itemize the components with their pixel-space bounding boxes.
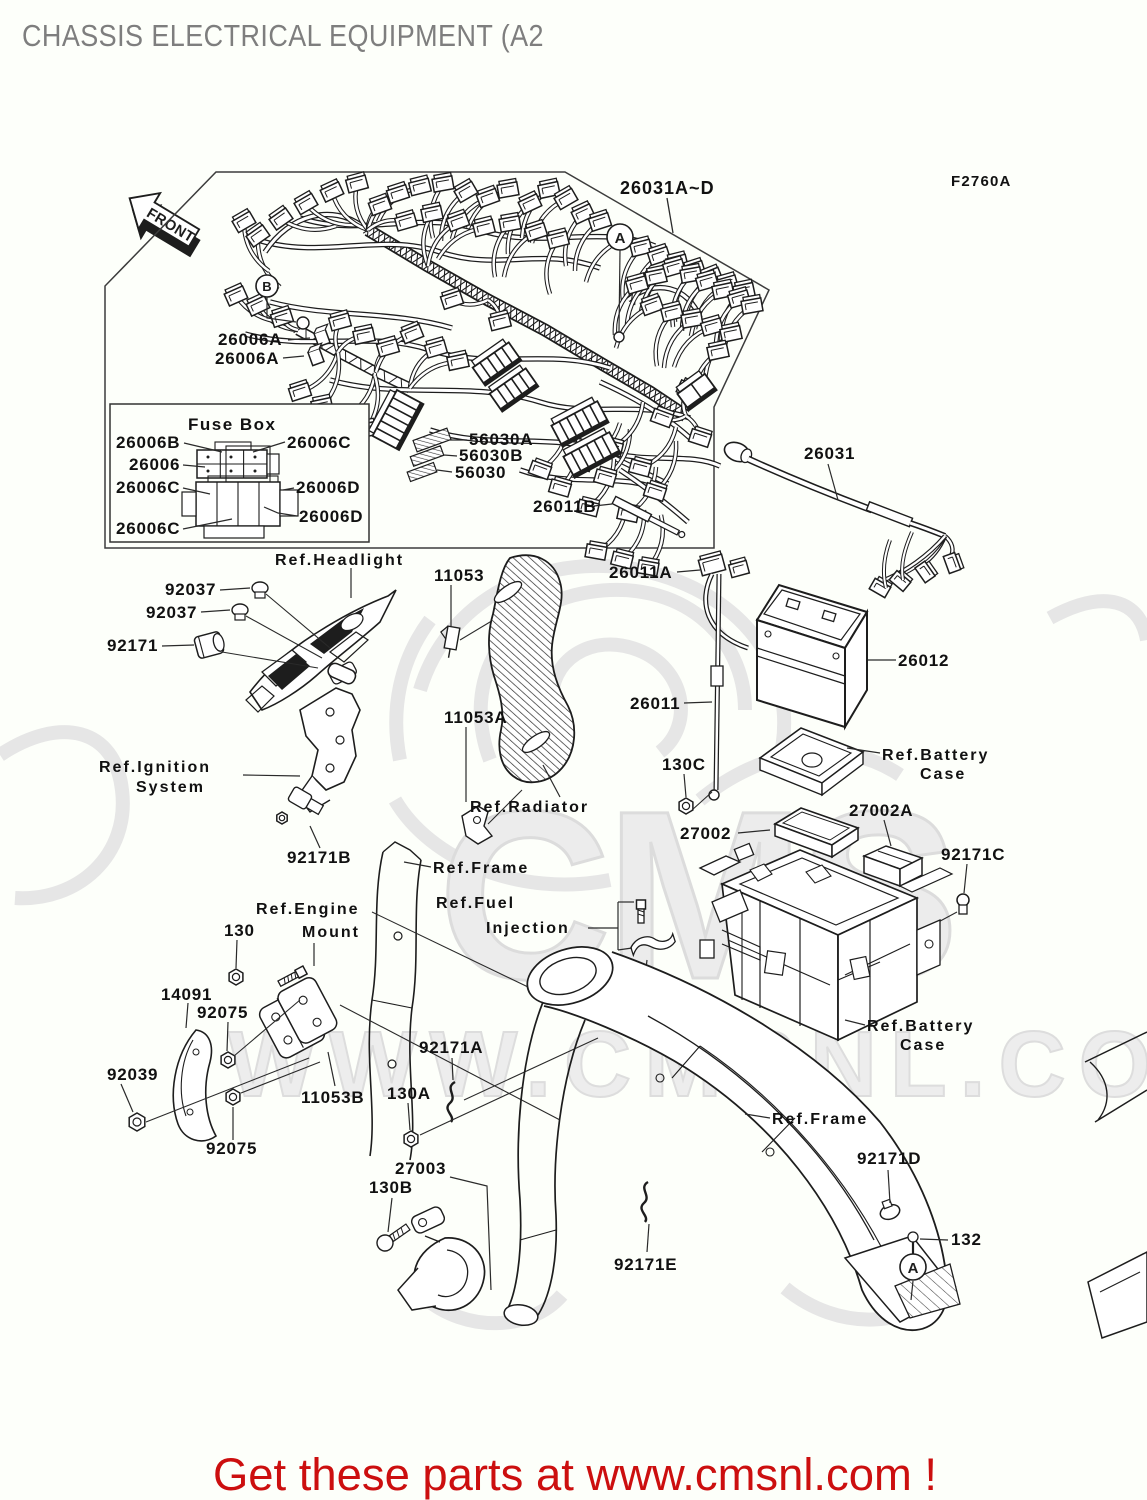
svg-text:26012: 26012: [898, 651, 949, 670]
svg-text:92171E: 92171E: [614, 1255, 677, 1274]
svg-text:A: A: [615, 230, 626, 247]
svg-text:Ref.Frame: Ref.Frame: [772, 1111, 868, 1128]
svg-text:11053B: 11053B: [301, 1088, 364, 1107]
svg-text:56030: 56030: [455, 463, 506, 482]
svg-text:Ref.Battery: Ref.Battery: [882, 747, 989, 764]
svg-text:26031: 26031: [804, 444, 855, 463]
svg-text:26006A: 26006A: [215, 349, 279, 368]
svg-text:92037: 92037: [165, 580, 216, 599]
svg-text:26011B: 26011B: [533, 497, 596, 516]
svg-text:Get these parts at www.cmsnl.c: Get these parts at www.cmsnl.com !: [213, 1449, 937, 1500]
svg-text:92171D: 92171D: [857, 1149, 921, 1168]
svg-text:Ref.Headlight: Ref.Headlight: [275, 552, 404, 569]
svg-text:Ref.Fuel: Ref.Fuel: [436, 895, 515, 912]
svg-text:92171C: 92171C: [941, 845, 1005, 864]
svg-text:132: 132: [951, 1230, 982, 1249]
svg-text:Ref.Engine: Ref.Engine: [256, 901, 360, 918]
svg-text:26006D: 26006D: [296, 478, 360, 497]
svg-text:26011: 26011: [630, 694, 680, 713]
svg-text:130A: 130A: [387, 1084, 431, 1103]
svg-text:92075: 92075: [206, 1139, 257, 1158]
svg-text:11053A: 11053A: [444, 708, 507, 727]
svg-text:F2760A: F2760A: [951, 173, 1012, 190]
svg-text:26006C: 26006C: [116, 519, 180, 538]
svg-text:26006C: 26006C: [287, 433, 351, 452]
svg-text:14091: 14091: [161, 985, 212, 1004]
svg-text:27003: 27003: [395, 1159, 446, 1178]
svg-text:B: B: [262, 279, 271, 294]
svg-text:26006D: 26006D: [299, 507, 363, 526]
svg-text:27002: 27002: [680, 824, 731, 843]
svg-text:A: A: [908, 1260, 919, 1277]
svg-text:130C: 130C: [662, 755, 706, 774]
svg-text:System: System: [136, 779, 205, 796]
svg-text:26011A: 26011A: [609, 563, 672, 582]
svg-text:Fuse Box: Fuse Box: [188, 415, 277, 434]
svg-text:11053: 11053: [434, 566, 484, 585]
svg-text:92075: 92075: [197, 1003, 248, 1022]
svg-text:130: 130: [224, 921, 255, 940]
svg-text:92171A: 92171A: [419, 1038, 483, 1057]
svg-text:130B: 130B: [369, 1178, 413, 1197]
svg-text:Case: Case: [900, 1037, 946, 1054]
svg-text:26006A: 26006A: [218, 330, 282, 349]
svg-text:27002A: 27002A: [849, 801, 913, 820]
svg-text:92171B: 92171B: [287, 848, 351, 867]
svg-text:Mount: Mount: [302, 924, 360, 941]
svg-text:26031A~D: 26031A~D: [620, 178, 715, 198]
svg-text:Ref.Battery: Ref.Battery: [867, 1018, 974, 1035]
svg-text:Ref.Frame: Ref.Frame: [433, 860, 529, 877]
svg-text:92037: 92037: [146, 603, 197, 622]
svg-text:Ref.Ignition: Ref.Ignition: [99, 759, 211, 776]
svg-text:Injection: Injection: [486, 920, 570, 937]
svg-text:CHASSIS ELECTRICAL EQUIPMENT (: CHASSIS ELECTRICAL EQUIPMENT (A2: [22, 18, 544, 53]
svg-text:Ref.Radiator: Ref.Radiator: [470, 799, 589, 816]
svg-text:92171: 92171: [107, 636, 158, 655]
svg-text:26006: 26006: [129, 455, 180, 474]
svg-text:92039: 92039: [107, 1065, 158, 1084]
svg-text:Case: Case: [920, 766, 966, 783]
svg-text:26006C: 26006C: [116, 478, 180, 497]
svg-text:26006B: 26006B: [116, 433, 180, 452]
